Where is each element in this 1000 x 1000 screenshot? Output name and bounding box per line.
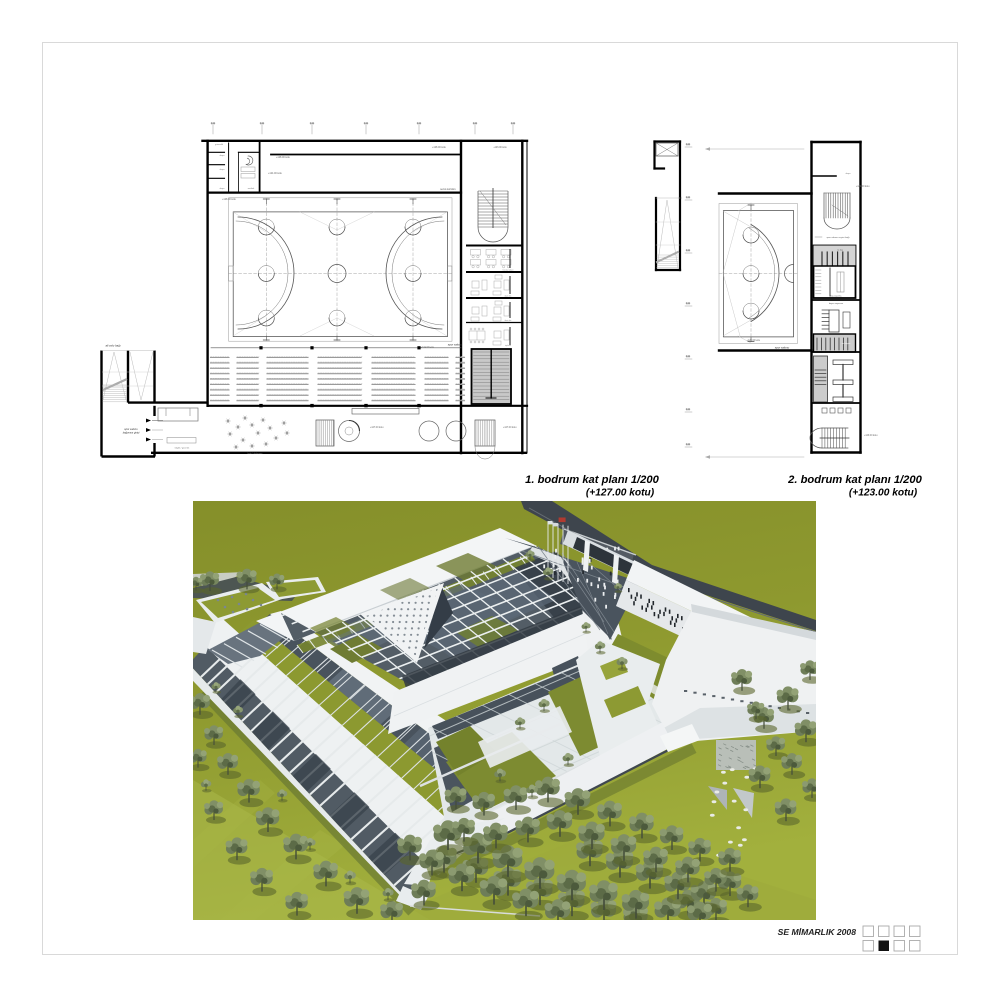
svg-text:depo: depo (220, 169, 226, 171)
svg-text:wc bayan: wc bayan (842, 343, 850, 345)
svg-text:1. bodrum kat planı 1/200: 1. bodrum kat planı 1/200 (525, 474, 659, 486)
svg-text:depo: depo (220, 188, 226, 190)
svg-text:güvenlik: güvenlik (215, 144, 224, 146)
svg-text:+120.00 kotu: +120.00 kotu (747, 339, 761, 342)
svg-text:bağımsız girişi: bağımsız girişi (123, 431, 140, 435)
svg-text:+127.00 kotu: +127.00 kotu (370, 426, 384, 429)
svg-text:spor salonu: spor salonu (775, 345, 790, 349)
svg-text:wc bay: wc bay (837, 250, 843, 252)
svg-text:depo: depo (220, 155, 226, 157)
svg-text:+124.00 kotu: +124.00 kotu (856, 185, 870, 188)
svg-text:+128.00 kotu: +128.00 kotu (432, 146, 447, 149)
svg-text:+123.00 kotu: +123.00 kotu (864, 434, 878, 437)
svg-text:+128.00 kotu: +128.00 kotu (276, 156, 291, 159)
svg-text:spor salonu: spor salonu (124, 427, 138, 431)
svg-text:toplantı: toplantı (505, 344, 511, 347)
svg-text:idari ofis: idari ofis (505, 320, 512, 322)
svg-text:alt avlu bağı: alt avlu bağı (105, 344, 120, 348)
svg-text:bilgilik / güvenlik: bilgilik / güvenlik (175, 448, 189, 450)
svg-text:SE MİMARLIK 2008: SE MİMARLIK 2008 (778, 927, 857, 937)
svg-text:+128.00 kotu: +128.00 kotu (222, 198, 237, 201)
svg-text:mutfak: mutfak (248, 187, 255, 190)
svg-text:servis koridoru: servis koridoru (440, 188, 456, 191)
svg-text:2. bodrum kat planı 1/200: 2. bodrum kat planı 1/200 (787, 474, 922, 486)
svg-text:depo: depo (846, 173, 852, 175)
svg-text:+127.00 kotu: +127.00 kotu (503, 426, 517, 429)
svg-text:+126.00 kotu: +126.00 kotu (493, 146, 507, 149)
svg-text:bayan soyunma: bayan soyunma (829, 303, 844, 305)
svg-text:spor salonu seyirci bağı: spor salonu seyirci bağı (827, 236, 850, 239)
svg-text:+124.00 kotu: +124.00 kotu (268, 172, 283, 175)
svg-text:kafe / dinlenme: kafe / dinlenme (248, 453, 264, 455)
svg-text:(+127.00 kotu): (+127.00 kotu) (586, 488, 655, 499)
svg-text:spor salonu: spor salonu (448, 343, 463, 347)
svg-text:(+123.00 kotu): (+123.00 kotu) (849, 488, 918, 499)
svg-text:bay soyunma: bay soyunma (831, 296, 842, 298)
